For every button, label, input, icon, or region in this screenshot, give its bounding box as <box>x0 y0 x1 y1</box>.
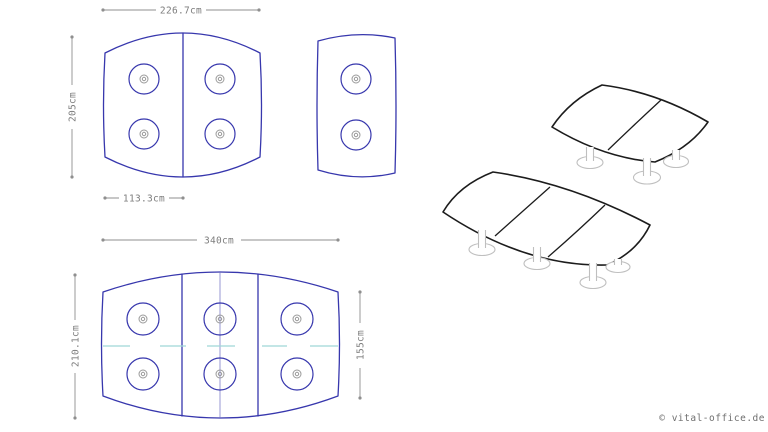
dimension-label: 205cm <box>68 92 79 122</box>
leg-center-mark <box>141 317 144 320</box>
segment-outline <box>317 35 396 177</box>
leg-post <box>479 230 486 248</box>
leg-center-mark <box>216 130 224 138</box>
furniture-dimension-drawing: 226.7cm 205cm 113.3cm <box>0 0 768 432</box>
leg-center-mark <box>139 370 147 378</box>
dimension-two-segment-width: 226.7cm <box>101 4 260 17</box>
dimension-two-segment-height: 205cm <box>66 35 79 178</box>
dimension-label: 340cm <box>204 236 234 247</box>
leg-position <box>127 358 159 390</box>
plan-two-segment-table <box>104 33 262 177</box>
leg-post <box>673 150 680 160</box>
dimension-three-segment-height: 210.1cm <box>69 273 82 419</box>
tabletop-3d <box>552 85 708 162</box>
leg-position <box>129 119 159 149</box>
leg-circle <box>281 303 313 335</box>
dimension-end-marker <box>257 8 260 11</box>
dimension-end-marker <box>101 8 104 11</box>
watermark-text: © vital-office.de <box>659 413 765 424</box>
dimension-end-marker <box>101 238 104 241</box>
leg-center-mark <box>140 130 148 138</box>
leg-center-mark <box>218 132 221 135</box>
leg-circle <box>129 119 159 149</box>
tabletop-outline <box>102 272 340 418</box>
plan-single-segment <box>317 35 396 177</box>
dimension-end-marker <box>73 416 76 419</box>
leg-center-mark <box>295 317 298 320</box>
dimension-label: 155cm <box>356 330 367 360</box>
leg-post <box>590 263 597 281</box>
leg-circle <box>127 358 159 390</box>
leg-position <box>127 303 159 335</box>
leg-position <box>205 64 235 94</box>
leg-center-mark <box>352 75 360 83</box>
leg-center-mark <box>218 77 221 80</box>
leg-circle <box>205 64 235 94</box>
dimension-label: 226.7cm <box>160 6 202 17</box>
leg-circle <box>129 64 159 94</box>
dimension-end-marker <box>336 238 339 241</box>
dimension-end-marker <box>70 175 73 178</box>
plan-three-segment-table <box>102 272 340 418</box>
leg-post <box>534 247 541 262</box>
leg-position <box>205 119 235 149</box>
leg-position <box>341 64 371 94</box>
leg-center-mark <box>293 370 301 378</box>
leg-center-mark <box>141 372 144 375</box>
leg-center-mark <box>354 133 357 136</box>
leg-circle <box>127 303 159 335</box>
render-two-segment-table <box>552 85 708 184</box>
leg-circle <box>341 64 371 94</box>
dimension-end-marker <box>358 396 361 399</box>
dimension-three-segment-width: 340cm <box>101 234 339 247</box>
leg-center-mark <box>352 131 360 139</box>
leg-circle <box>281 358 313 390</box>
leg-circle <box>341 120 371 150</box>
leg-position <box>281 303 313 335</box>
render-three-segment-table <box>443 172 650 289</box>
dimension-segment-width: 113.3cm <box>103 192 184 205</box>
leg-post <box>587 147 594 161</box>
dimension-end-marker <box>73 273 76 276</box>
leg-center-mark <box>140 75 148 83</box>
leg-center-mark <box>295 372 298 375</box>
dimension-end-marker <box>181 196 184 199</box>
leg-position <box>281 358 313 390</box>
leg-position <box>129 64 159 94</box>
leg-circle <box>205 119 235 149</box>
dimension-three-segment-side-height: 155cm <box>354 290 367 399</box>
leg-center-mark <box>142 77 145 80</box>
dimension-label: 113.3cm <box>123 194 165 205</box>
leg-position <box>341 120 371 150</box>
leg-post <box>644 158 651 176</box>
dimension-label: 210.1cm <box>71 325 82 367</box>
leg-center-mark <box>139 315 147 323</box>
leg-center-mark <box>216 75 224 83</box>
table-leg <box>580 263 606 289</box>
leg-center-mark <box>354 77 357 80</box>
leg-center-mark <box>293 315 301 323</box>
dimension-end-marker <box>70 35 73 38</box>
leg-post <box>615 259 622 265</box>
leg-center-mark <box>142 132 145 135</box>
dimension-end-marker <box>358 290 361 293</box>
dimension-end-marker <box>103 196 106 199</box>
